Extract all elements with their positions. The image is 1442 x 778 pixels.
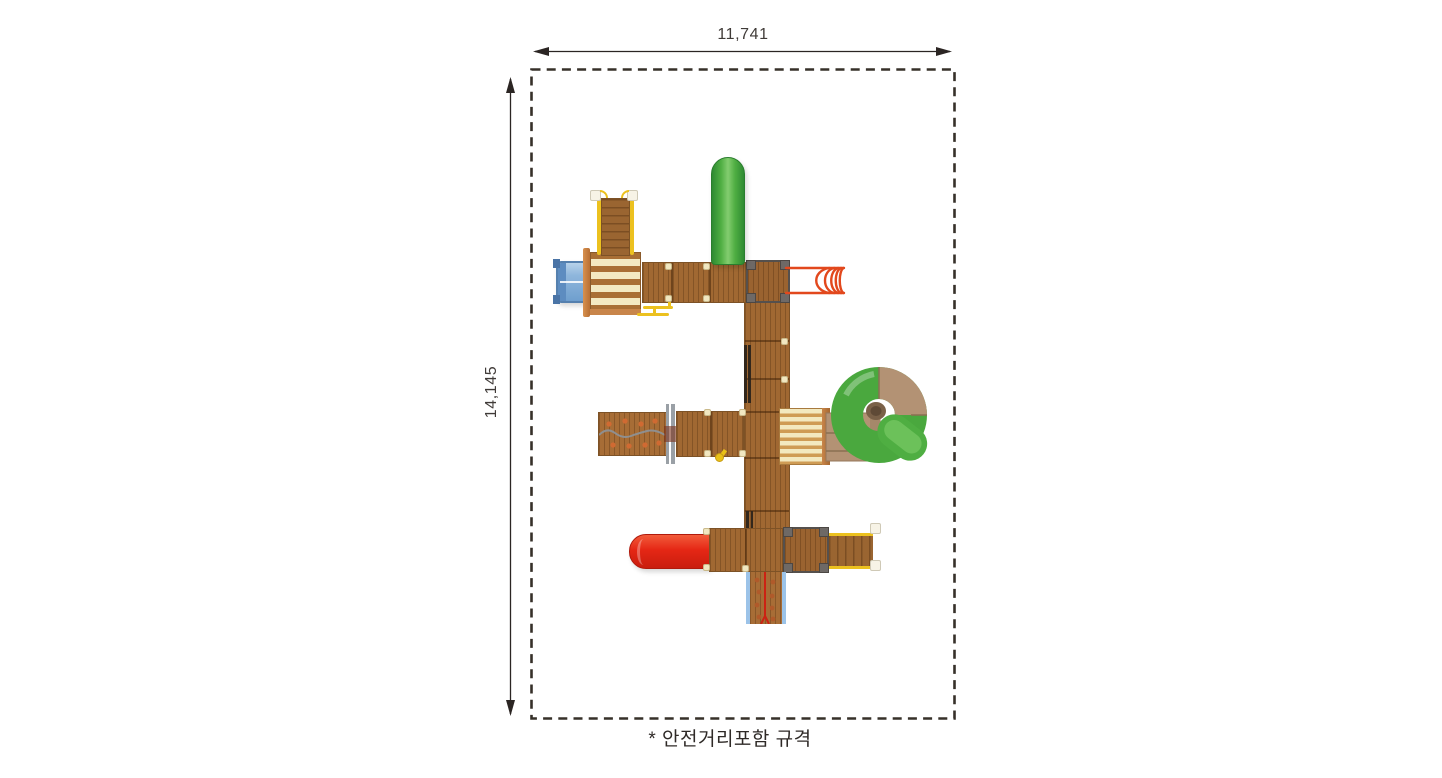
exit-stairs-right (829, 533, 873, 569)
plank-divider (710, 412, 712, 456)
climbing-wall-bottom (746, 572, 786, 624)
post-notch (665, 295, 672, 302)
wall-rope-and-holds (750, 572, 782, 624)
post-notch (704, 409, 711, 416)
stair-post (870, 523, 881, 534)
post-notch (704, 450, 711, 457)
post-notch (781, 338, 788, 345)
height-dimension-label: 14,145 (483, 366, 501, 419)
width-arrow-left-icon (533, 47, 549, 56)
post-notch (665, 263, 672, 270)
climbing-ramp (598, 412, 668, 456)
red-slide (629, 534, 710, 569)
post-cap (746, 293, 756, 303)
height-arrow-down-icon (506, 700, 515, 716)
tube-bracket (553, 295, 560, 304)
stair-post (870, 560, 881, 571)
pole-mark (744, 345, 747, 403)
post-notch (739, 450, 746, 457)
height-arrow-up-icon (506, 77, 515, 93)
post-cap (819, 563, 829, 573)
width-dimension-label: 11,741 (534, 26, 952, 44)
post-cap (783, 527, 793, 537)
post-notch (703, 564, 710, 571)
play-wheel-icon (715, 453, 724, 462)
corner-platform-bottom (783, 527, 829, 573)
tube-bracket (553, 259, 560, 268)
post-cap (746, 260, 756, 270)
orange-arch-ladder (784, 261, 848, 301)
stair-handrail-right (630, 195, 634, 255)
roof-ridge-board (583, 248, 590, 317)
annotation-linework (0, 0, 1442, 778)
post-notch (703, 263, 710, 270)
post-notch (739, 409, 746, 416)
striped-roof (590, 252, 641, 310)
striped-deck (779, 408, 823, 465)
post-notch (703, 528, 710, 535)
roof-eave (590, 309, 641, 315)
post-notch (742, 565, 749, 572)
safety-footnote: * 안전거리포함 규격 (520, 724, 940, 751)
post-notch (781, 376, 788, 383)
post-notch (703, 295, 710, 302)
width-arrow-right-icon (936, 47, 952, 56)
playground-plan-drawing: 11,741 14,145 * 안전거리포함 규격 (0, 0, 1442, 778)
spiral-tube-slide (824, 363, 940, 469)
green-tube-slide (711, 157, 745, 265)
ramp-post-joint (664, 426, 676, 442)
pole-mark (748, 345, 751, 403)
entry-stairs-top (601, 198, 630, 256)
climb-holds-and-rope (599, 413, 666, 454)
platform-row-top (642, 262, 746, 303)
post-cap (819, 527, 829, 537)
slide-sheen (637, 539, 650, 565)
gate-bar-joint (653, 306, 656, 316)
